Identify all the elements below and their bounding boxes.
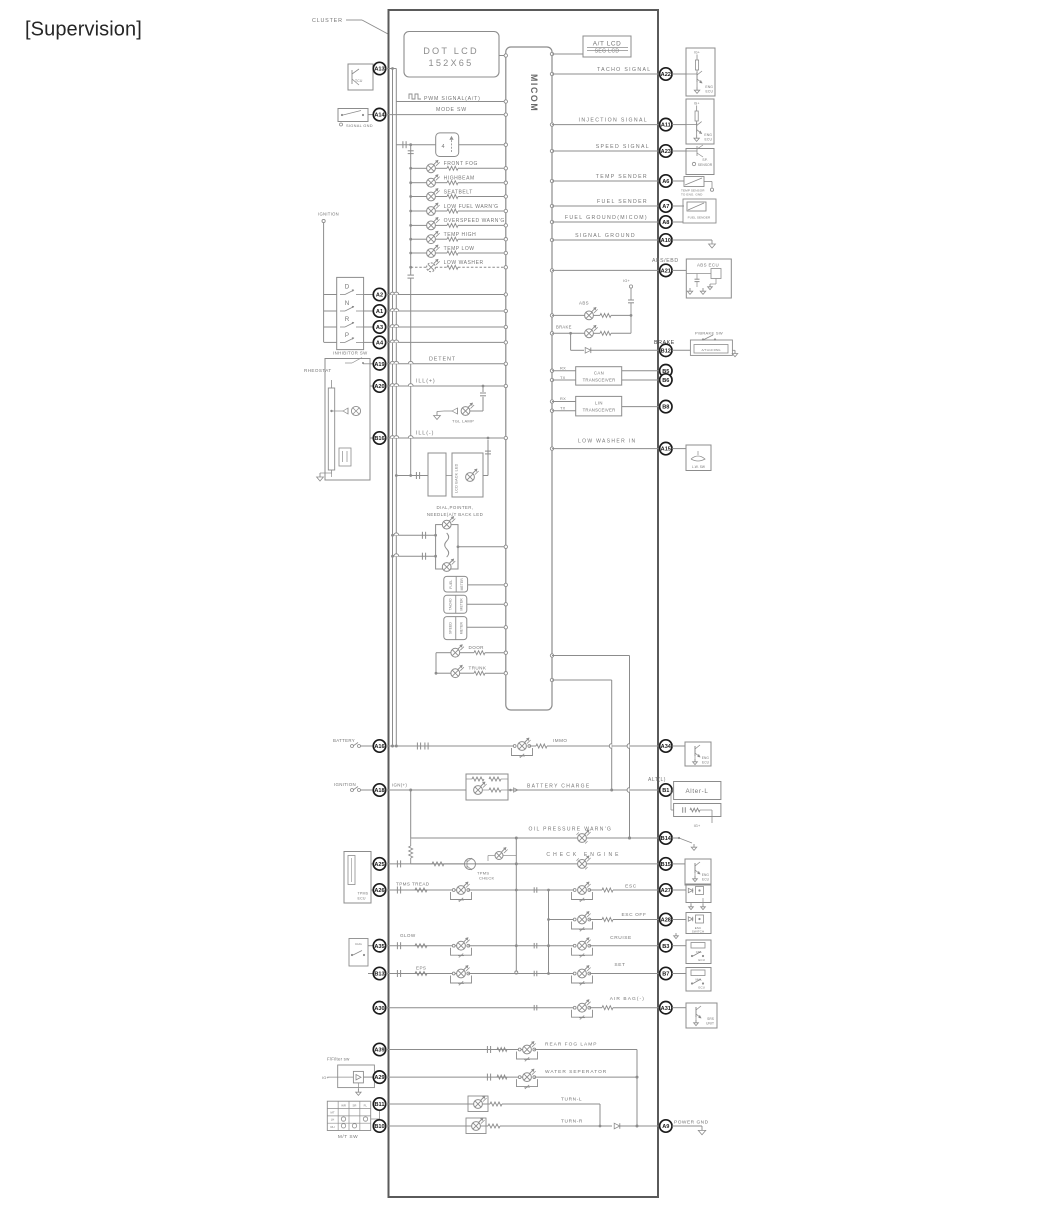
svg-text:TX: TX (560, 406, 566, 411)
svg-text:A15: A15 (661, 447, 671, 453)
svg-text:B12: B12 (661, 348, 671, 354)
svg-text:ECU: ECU (698, 986, 705, 990)
svg-text:DETENT: DETENT (429, 357, 456, 363)
svg-text:IGN(+): IGN(+) (392, 783, 407, 788)
svg-text:P/BRAKE SW: P/BRAKE SW (695, 331, 723, 336)
svg-text:WATER SEPERATOR: WATER SEPERATOR (545, 1069, 607, 1075)
svg-text:B1: B1 (662, 788, 669, 794)
svg-text:A/T LCD: A/T LCD (593, 41, 622, 48)
svg-text:B6: B6 (662, 378, 669, 384)
svg-text:A19: A19 (374, 362, 384, 368)
svg-text:TX: TX (560, 375, 566, 380)
svg-text:SET: SET (614, 962, 625, 968)
svg-text:EPS: EPS (416, 966, 426, 971)
svg-text:LH: LH (331, 1118, 335, 1122)
svg-text:TRANSCEIVER: TRANSCEIVER (583, 408, 616, 413)
svg-text:SWITCH: SWITCH (692, 930, 704, 934)
svg-text:OIL PRESSURE WARN'G: OIL PRESSURE WARN'G (529, 827, 613, 833)
svg-text:NEEDLE(A/T BACK LED: NEEDLE(A/T BACK LED (427, 512, 483, 517)
svg-text:DOOR: DOOR (469, 645, 485, 650)
svg-text:INJECTION SIGNAL: INJECTION SIGNAL (579, 117, 648, 123)
svg-text:TACHO: TACHO (449, 598, 453, 610)
svg-text:A29: A29 (374, 1075, 384, 1081)
svg-text:CHG: CHG (355, 942, 363, 946)
svg-text:R: R (345, 316, 350, 323)
svg-text:ECU: ECU (702, 878, 710, 882)
svg-text:A1: A1 (376, 309, 383, 315)
svg-text:IMMO: IMMO (553, 738, 568, 743)
svg-text:ECU: ECU (698, 958, 705, 962)
svg-text:BATTERY: BATTERY (333, 738, 355, 743)
svg-text:SEATBELT: SEATBELT (444, 189, 473, 195)
svg-text:TRUNK: TRUNK (469, 666, 487, 671)
svg-text:B11: B11 (375, 1102, 385, 1108)
svg-text:IG+: IG+ (322, 1076, 329, 1080)
svg-text:FUEL GROUND(MICOM): FUEL GROUND(MICOM) (565, 215, 648, 221)
svg-text:P: P (345, 332, 349, 339)
svg-text:UNIT: UNIT (706, 1022, 714, 1026)
svg-text:M/T SW: M/T SW (338, 1134, 358, 1140)
svg-text:D: D (345, 284, 350, 291)
svg-text:ECU: ECU (702, 761, 710, 765)
svg-text:TCU: TCU (355, 79, 363, 83)
svg-text:TACHO SIGNAL: TACHO SIGNAL (597, 67, 651, 73)
svg-text:TEMP LOW: TEMP LOW (444, 246, 475, 252)
svg-text:A35: A35 (374, 944, 384, 950)
svg-text:B14: B14 (661, 836, 672, 842)
svg-text:[Supervision]: [Supervision] (25, 19, 142, 41)
svg-text:ENG: ENG (704, 133, 712, 137)
svg-text:A18: A18 (374, 788, 384, 794)
svg-text:TPMS: TPMS (358, 892, 369, 896)
svg-text:ENG: ENG (702, 756, 710, 760)
svg-text:SRS: SRS (707, 1017, 714, 1021)
svg-text:A28: A28 (661, 918, 671, 924)
svg-text:SR: SR (352, 1104, 356, 1108)
svg-text:A34: A34 (661, 744, 672, 750)
svg-text:TURN-R: TURN-R (561, 1119, 583, 1125)
svg-text:CHECK: CHECK (479, 876, 495, 881)
svg-text:FUEL SENDER: FUEL SENDER (597, 199, 648, 205)
svg-text:IGNITION: IGNITION (318, 212, 339, 217)
svg-text:IG+: IG+ (694, 102, 700, 106)
svg-text:METER: METER (460, 578, 464, 591)
svg-text:TEMP HIGH: TEMP HIGH (444, 232, 477, 238)
svg-text:LOW FUEL WARN'G: LOW FUEL WARN'G (444, 204, 499, 210)
svg-text:A30: A30 (374, 1006, 384, 1012)
svg-text:ECU: ECU (705, 138, 713, 142)
svg-text:METER: METER (459, 598, 463, 611)
svg-text:ILL(-): ILL(-) (416, 431, 434, 437)
svg-text:MAL: MAL (696, 978, 703, 982)
svg-text:ESC OFF: ESC OFF (622, 912, 647, 918)
svg-text:B8: B8 (662, 405, 669, 411)
svg-text:CRUISE: CRUISE (610, 935, 632, 941)
svg-text:CNL: CNL (696, 950, 703, 954)
svg-text:MICOM: MICOM (529, 74, 539, 112)
svg-text:RHEOSTAT: RHEOSTAT (304, 368, 332, 373)
svg-text:A7: A7 (662, 204, 669, 210)
svg-text:A/T:A10 RNG: A/T:A10 RNG (701, 348, 721, 352)
svg-text:A22: A22 (661, 72, 671, 78)
svg-text:A14: A14 (374, 113, 385, 119)
svg-text:TRANSCEIVER: TRANSCEIVER (583, 378, 616, 383)
svg-text:A8: A8 (662, 220, 669, 226)
svg-text:A21: A21 (661, 269, 671, 275)
svg-text:ABS ECU: ABS ECU (697, 263, 719, 268)
svg-text:SENSOR: SENSOR (698, 163, 713, 167)
svg-text:TPMS TREAD: TPMS TREAD (396, 882, 430, 887)
svg-text:B3: B3 (662, 944, 669, 950)
svg-text:MT: MT (330, 1110, 334, 1114)
svg-text:METER: METER (459, 621, 463, 634)
svg-text:A20: A20 (374, 384, 384, 390)
svg-text:152X65: 152X65 (429, 58, 474, 68)
svg-text:A27: A27 (661, 888, 671, 894)
svg-text:ABS: ABS (579, 301, 589, 306)
svg-text:N: N (345, 300, 349, 307)
svg-text:SIGNAL GROUND: SIGNAL GROUND (575, 233, 636, 239)
svg-text:POWER GND: POWER GND (674, 1120, 709, 1126)
svg-text:ENG: ENG (705, 85, 713, 89)
svg-text:IG+: IG+ (694, 824, 701, 828)
svg-text:B7: B7 (662, 972, 669, 978)
svg-text:HIGHBEAM: HIGHBEAM (444, 176, 475, 182)
svg-text:FUEL SENDER: FUEL SENDER (688, 216, 711, 220)
svg-text:SP.: SP. (702, 158, 707, 162)
svg-text:AIR BAG(-): AIR BAG(-) (610, 996, 645, 1002)
svg-text:TURN-L: TURN-L (561, 1097, 582, 1103)
svg-text:SIGNAL GND: SIGNAL GND (346, 123, 373, 128)
svg-text:ABS/EBD: ABS/EBD (652, 258, 679, 264)
svg-text:CHECK ENGINE: CHECK ENGINE (546, 852, 621, 858)
svg-text:FRONT FOG: FRONT FOG (444, 161, 478, 167)
svg-text:A13: A13 (374, 67, 384, 73)
svg-text:RX: RX (560, 365, 566, 370)
svg-text:FUEL: FUEL (449, 580, 453, 589)
svg-text:OVERSPEED WARN'G: OVERSPEED WARN'G (444, 218, 505, 224)
svg-text:A31: A31 (661, 1006, 671, 1012)
svg-text:RH: RH (330, 1125, 334, 1129)
svg-text:A39: A39 (374, 1048, 384, 1054)
svg-text:A9: A9 (662, 1124, 669, 1130)
svg-text:ECU: ECU (706, 90, 714, 94)
svg-text:F/Filter sw: F/Filter sw (327, 1057, 350, 1062)
svg-text:SEG LCD: SEG LCD (595, 49, 620, 55)
svg-text:DIAL,POINTER,: DIAL,POINTER, (437, 505, 474, 510)
svg-text:GLOW: GLOW (400, 933, 416, 938)
svg-text:Alter-L: Alter-L (685, 788, 708, 795)
svg-text:A25: A25 (374, 862, 384, 868)
svg-text:A4: A4 (376, 341, 384, 347)
svg-text:FL: FL (364, 1104, 368, 1108)
svg-text:IG+: IG+ (694, 51, 700, 55)
svg-text:A23: A23 (661, 149, 671, 155)
svg-text:SPEED SIGNAL: SPEED SIGNAL (596, 144, 650, 150)
svg-text:A10: A10 (661, 238, 671, 244)
svg-text:MODE SW: MODE SW (436, 107, 467, 113)
svg-text:A2: A2 (376, 293, 383, 299)
svg-text:TEMP SENDER: TEMP SENDER (596, 174, 648, 180)
svg-text:RX: RX (560, 396, 566, 401)
svg-text:TGL LAMP: TGL LAMP (452, 419, 474, 424)
svg-text:BRAKE: BRAKE (556, 325, 572, 330)
svg-text:WR: WR (341, 1104, 346, 1108)
svg-text:INHIBITOR SW: INHIBITOR SW (333, 351, 368, 356)
svg-text:L.W. SW: L.W. SW (692, 465, 705, 469)
svg-text:B13: B13 (374, 972, 384, 978)
svg-text:4: 4 (441, 144, 444, 150)
svg-text:TO ENG. GND: TO ENG. GND (681, 193, 703, 197)
svg-text:LOW WASHER IN: LOW WASHER IN (578, 439, 636, 445)
svg-text:REAR FOG LAMP: REAR FOG LAMP (545, 1042, 597, 1048)
svg-text:IG+: IG+ (623, 279, 630, 283)
svg-text:LOW WASHER: LOW WASHER (444, 260, 484, 266)
svg-text:B16: B16 (374, 436, 384, 442)
svg-text:SPEED: SPEED (449, 622, 453, 634)
svg-text:ALT(L): ALT(L) (648, 777, 666, 783)
svg-text:LCD BACK LED: LCD BACK LED (455, 463, 459, 493)
svg-text:IGNITION: IGNITION (334, 782, 356, 787)
svg-text:CAN: CAN (594, 371, 604, 376)
svg-text:A16: A16 (374, 744, 384, 750)
svg-text:ENG: ENG (702, 873, 710, 877)
svg-text:B15: B15 (661, 862, 671, 868)
svg-text:LIN: LIN (595, 401, 603, 406)
svg-text:A3: A3 (376, 325, 383, 331)
svg-text:A11: A11 (661, 123, 671, 129)
svg-text:ECU: ECU (358, 897, 366, 901)
svg-text:A26: A26 (374, 888, 384, 894)
svg-text:CLUSTER: CLUSTER (312, 18, 343, 24)
svg-text:B10: B10 (374, 1124, 384, 1130)
svg-text:A6: A6 (662, 179, 669, 185)
svg-text:ESC: ESC (625, 883, 637, 889)
svg-text:ILL(+): ILL(+) (416, 379, 436, 385)
svg-text:BATTERY CHARGE: BATTERY CHARGE (527, 784, 591, 790)
svg-text:DOT LCD: DOT LCD (423, 46, 479, 56)
